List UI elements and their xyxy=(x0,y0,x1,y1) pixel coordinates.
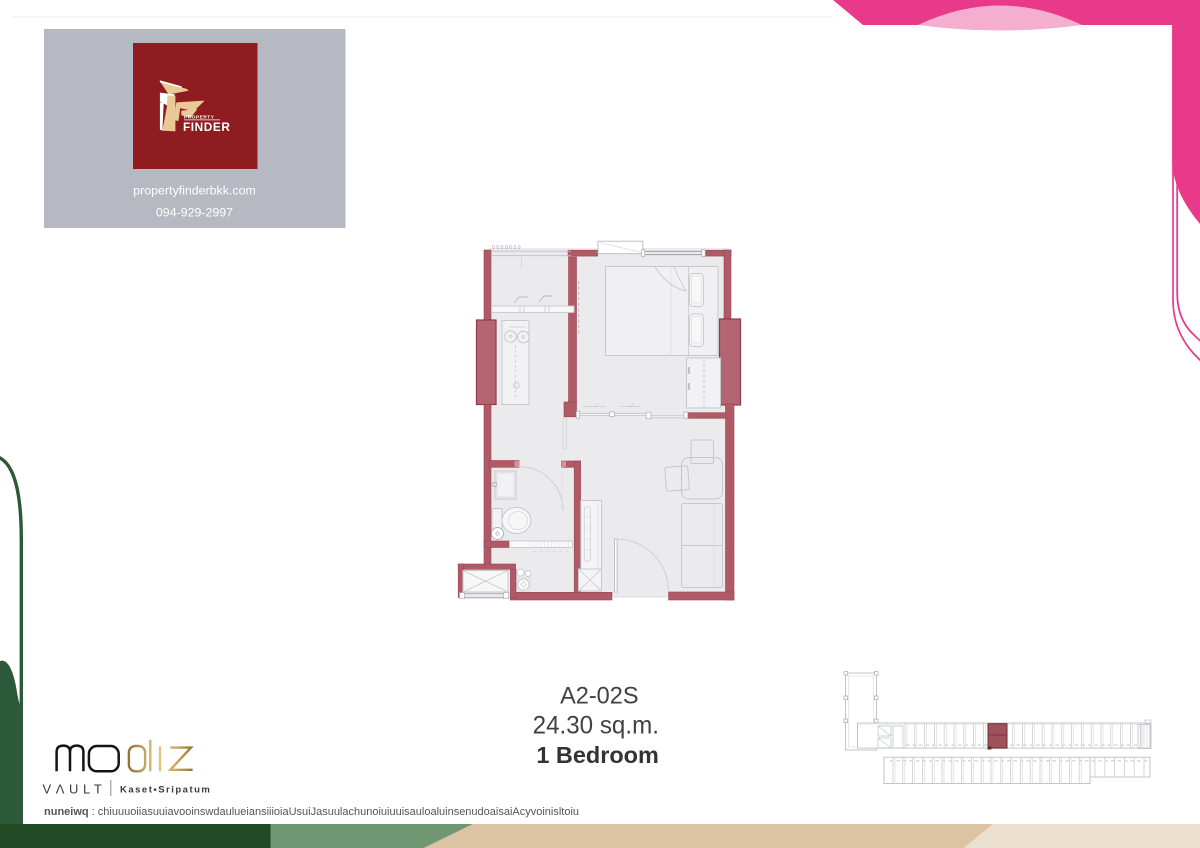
svg-text:094-929-2997: 094-929-2997 xyxy=(156,206,233,220)
svg-text:propertyfinderbkk.com: propertyfinderbkk.com xyxy=(133,184,256,198)
svg-text:Kaset•Sripatum: Kaset•Sripatum xyxy=(120,785,211,796)
svg-text:A2-02S: A2-02S xyxy=(560,683,638,710)
svg-text:nuneiwq : chiuuuoiiasuuiavooin: nuneiwq : chiuuuoiiasuuiavooinswdaulueia… xyxy=(44,806,579,818)
svg-text:24.30 sq.m.: 24.30 sq.m. xyxy=(533,711,659,739)
svg-text:1 Bedroom: 1 Bedroom xyxy=(536,742,659,768)
svg-text:FINDER: FINDER xyxy=(183,120,231,134)
svg-text:VΛULT: VΛULT xyxy=(43,782,107,797)
